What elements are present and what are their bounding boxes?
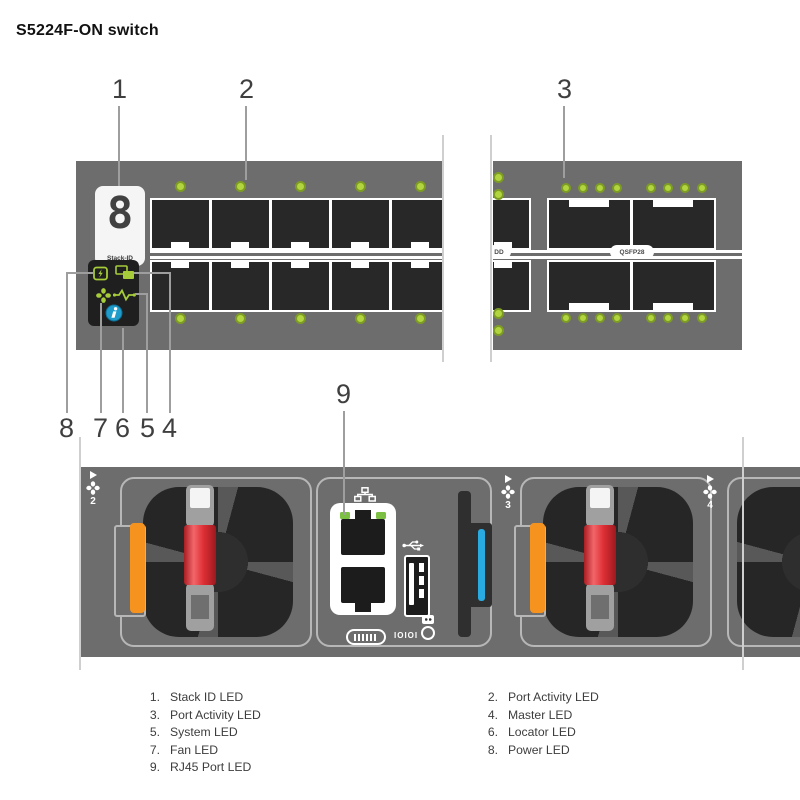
port-activity-led bbox=[612, 183, 622, 193]
port-latch bbox=[569, 303, 609, 310]
port-led bbox=[493, 325, 504, 336]
port-led bbox=[493, 189, 504, 200]
port-latch bbox=[291, 242, 309, 248]
fan-module bbox=[120, 477, 312, 647]
led-cell bbox=[270, 313, 330, 324]
port-latch bbox=[351, 262, 369, 268]
port-activity-led bbox=[235, 313, 246, 324]
legend-number: 6. bbox=[478, 725, 498, 743]
led-cell bbox=[330, 181, 390, 192]
port-activity-led bbox=[578, 313, 588, 323]
port-activity-led bbox=[595, 183, 605, 193]
rj45-led-left bbox=[340, 512, 350, 519]
media-slot-stripe bbox=[478, 529, 485, 601]
panel-divider-line bbox=[150, 256, 443, 259]
fan-release-tab bbox=[530, 523, 545, 613]
port-activity-led bbox=[663, 313, 673, 323]
legend-item: 7.Fan LED bbox=[140, 743, 261, 761]
callout-8-line bbox=[66, 272, 68, 413]
legend-number: 4. bbox=[478, 708, 498, 726]
port-activity-led bbox=[680, 183, 690, 193]
port-latch bbox=[653, 200, 693, 207]
fan-module-partial bbox=[727, 477, 800, 647]
port-activity-led bbox=[295, 181, 306, 192]
panel-divider-line bbox=[150, 250, 443, 253]
fan-handle-grip bbox=[584, 525, 616, 585]
port-activity-led bbox=[355, 181, 366, 192]
port-latch bbox=[411, 262, 429, 268]
legend-item: 5.System LED bbox=[140, 725, 261, 743]
legend-column-left: 1.Stack ID LED 3.Port Activity LED 5.Sys… bbox=[140, 690, 261, 778]
port-activity-led bbox=[561, 183, 571, 193]
legend-text: Stack ID LED bbox=[170, 690, 243, 708]
legend-text: Master LED bbox=[508, 708, 572, 726]
fan-icon bbox=[703, 485, 717, 499]
callout-6: 6 bbox=[115, 415, 130, 442]
network-icon bbox=[354, 487, 376, 502]
qsfp-led-row-top bbox=[549, 183, 718, 193]
port-latch bbox=[653, 303, 693, 310]
callout-5-line bbox=[146, 293, 148, 413]
led-cell bbox=[210, 181, 270, 192]
qsfp-port bbox=[549, 200, 630, 248]
fan-handle-bottom-cap bbox=[591, 595, 609, 619]
port-activity-led bbox=[295, 313, 306, 324]
fan-icon bbox=[86, 481, 100, 495]
qsfp-led-row-bottom bbox=[549, 313, 718, 323]
port-latch bbox=[171, 242, 189, 248]
port-activity-led bbox=[355, 313, 366, 324]
port-latch bbox=[291, 262, 309, 268]
qsfp-port-row-top bbox=[547, 198, 716, 250]
legend-item: 8.Power LED bbox=[478, 743, 599, 761]
qsfp-led-group bbox=[549, 183, 633, 193]
sfp-port bbox=[392, 262, 443, 310]
sfp-port bbox=[332, 200, 389, 248]
led-cell bbox=[210, 313, 270, 324]
triangle-icon bbox=[505, 475, 512, 483]
system-led-icon bbox=[113, 288, 136, 302]
port-activity-led bbox=[595, 313, 605, 323]
qsfp-port bbox=[633, 262, 714, 310]
fan-handle-grip bbox=[184, 525, 216, 585]
port-activity-led bbox=[175, 313, 186, 324]
port-latch bbox=[569, 200, 609, 207]
sfp-port bbox=[152, 262, 209, 310]
callout-9: 9 bbox=[336, 381, 351, 408]
rj45-port-top bbox=[341, 519, 385, 555]
diagram-break-line bbox=[742, 437, 744, 670]
callout-8: 8 bbox=[59, 415, 74, 442]
status-led-box bbox=[88, 260, 139, 326]
port-latch bbox=[231, 242, 249, 248]
usb-port-contact bbox=[419, 589, 424, 598]
fan-module-number: 4 bbox=[707, 501, 713, 511]
legend-item: 9.RJ45 Port LED bbox=[140, 760, 261, 778]
legend-number: 9. bbox=[140, 760, 160, 778]
sfp-port-partial bbox=[493, 198, 531, 250]
sfp-port bbox=[332, 262, 389, 310]
port-latch bbox=[494, 262, 512, 268]
callout-3: 3 bbox=[557, 76, 572, 103]
legend-item: 1.Stack ID LED bbox=[140, 690, 261, 708]
fan-handle-bottom-cap bbox=[191, 595, 209, 619]
port-activity-led bbox=[612, 313, 622, 323]
legend-item: 6.Locator LED bbox=[478, 725, 599, 743]
sfp-port bbox=[272, 200, 329, 248]
legend-column-right: 2.Port Activity LED 4.Master LED 6.Locat… bbox=[478, 690, 599, 760]
usb-port bbox=[404, 555, 430, 617]
diagram-break-line bbox=[79, 437, 81, 670]
port-activity-led bbox=[175, 181, 186, 192]
sfp-port bbox=[212, 262, 269, 310]
diagram-break-line bbox=[490, 135, 492, 362]
fan-blades bbox=[543, 487, 693, 637]
sfp-led-row-top bbox=[150, 181, 443, 192]
sfp-port-row-top bbox=[150, 198, 443, 250]
callout-4: 4 bbox=[162, 415, 177, 442]
led-cell bbox=[390, 313, 443, 324]
port-activity-led bbox=[697, 313, 707, 323]
legend-text: Power LED bbox=[508, 743, 570, 761]
callout-4-line-h bbox=[134, 272, 171, 274]
led-cell bbox=[390, 181, 443, 192]
fan-icon bbox=[501, 485, 515, 499]
led-cell bbox=[270, 181, 330, 192]
usb-port-contact bbox=[419, 563, 424, 572]
qsfp-led-group bbox=[634, 313, 718, 323]
sfp-port bbox=[272, 262, 329, 310]
triangle-icon bbox=[707, 475, 714, 483]
led-cell bbox=[330, 313, 390, 324]
fan-led-icon bbox=[96, 288, 111, 303]
port-activity-led bbox=[415, 181, 426, 192]
qsfp28-label: QSFP28 bbox=[610, 245, 654, 259]
legend-number: 3. bbox=[140, 708, 160, 726]
callout-2: 2 bbox=[239, 76, 254, 103]
port-led bbox=[493, 172, 504, 183]
port-activity-led bbox=[697, 183, 707, 193]
legend-number: 5. bbox=[140, 725, 160, 743]
callout-7: 7 bbox=[93, 415, 108, 442]
fan-blades bbox=[737, 487, 800, 637]
legend-item: 4.Master LED bbox=[478, 708, 599, 726]
legend-item: 2.Port Activity LED bbox=[478, 690, 599, 708]
rear-panel: 2 bbox=[80, 467, 800, 657]
legend-text: Locator LED bbox=[508, 725, 576, 743]
fan-module-marker: 4 bbox=[702, 475, 718, 511]
micro-usb-port bbox=[346, 629, 386, 645]
qsfp-port bbox=[549, 262, 630, 310]
usb-port-tongue bbox=[409, 563, 414, 605]
locator-led-icon bbox=[105, 304, 123, 322]
port-activity-led bbox=[235, 181, 246, 192]
fan-release-tab bbox=[130, 523, 145, 613]
sfp-port bbox=[212, 200, 269, 248]
stack-id-display: 8 Stack-ID bbox=[95, 186, 145, 266]
triangle-icon bbox=[90, 471, 97, 479]
callout-5: 5 bbox=[140, 415, 155, 442]
qsfp-port bbox=[633, 200, 714, 248]
diagram-break-line bbox=[442, 135, 444, 362]
port-led bbox=[493, 308, 504, 319]
sfp-port-row-bottom bbox=[150, 260, 443, 312]
rj45-port-bezel bbox=[330, 503, 396, 615]
fan-module-marker: 2 bbox=[85, 471, 101, 507]
usb-port-contact bbox=[419, 576, 424, 585]
led-cell bbox=[150, 313, 210, 324]
micro-usb-contacts bbox=[354, 634, 378, 641]
sfp-port-partial bbox=[493, 260, 531, 312]
lock-icon bbox=[422, 615, 434, 624]
page-title: S5224F-ON switch bbox=[16, 22, 159, 40]
callout-5-line-h bbox=[135, 293, 148, 295]
fan-blades bbox=[143, 487, 293, 637]
front-panel-left: 8 Stack-ID bbox=[76, 161, 443, 350]
sfp-port bbox=[152, 200, 209, 248]
port-latch bbox=[411, 242, 429, 248]
callout-2-line bbox=[245, 106, 247, 180]
sfp-led-row-bottom bbox=[150, 313, 443, 324]
stack-id-digit: 8 bbox=[95, 192, 145, 236]
power-led-icon bbox=[93, 266, 109, 281]
sfp-port bbox=[392, 200, 443, 248]
port-activity-led bbox=[415, 313, 426, 324]
port-activity-led bbox=[578, 183, 588, 193]
legend-text: RJ45 Port LED bbox=[170, 760, 251, 778]
port-activity-led bbox=[680, 313, 690, 323]
qsfp-port-row-bottom bbox=[547, 260, 716, 312]
port-latch bbox=[351, 242, 369, 248]
callout-6-line bbox=[122, 328, 124, 413]
led-cell bbox=[150, 181, 210, 192]
fan-module-marker: 3 bbox=[500, 475, 516, 511]
qsfp-dd-label: DD bbox=[493, 245, 511, 259]
port-latch bbox=[171, 262, 189, 268]
port-activity-led bbox=[646, 183, 656, 193]
fan-module bbox=[520, 477, 712, 647]
fan-handle-top-cap bbox=[590, 488, 610, 508]
legend-item: 3.Port Activity LED bbox=[140, 708, 261, 726]
fan-module-number: 2 bbox=[90, 497, 96, 507]
callout-7-line bbox=[100, 303, 102, 413]
rj45-tab bbox=[355, 510, 371, 520]
legend-number: 8. bbox=[478, 743, 498, 761]
port-activity-led bbox=[663, 183, 673, 193]
master-led-icon bbox=[115, 265, 135, 280]
port-latch bbox=[231, 262, 249, 268]
qsfp-led-group bbox=[549, 313, 633, 323]
lock-slot bbox=[421, 626, 435, 640]
serial-console-label: IOIOI bbox=[394, 631, 418, 640]
callout-1: 1 bbox=[112, 76, 127, 103]
front-panel-right: DD QSFP28 bbox=[493, 161, 742, 350]
legend-text: Fan LED bbox=[170, 743, 218, 761]
port-activity-led bbox=[561, 313, 571, 323]
rj45-led-right bbox=[376, 512, 386, 519]
legend-text: System LED bbox=[170, 725, 238, 743]
legend-text: Port Activity LED bbox=[170, 708, 261, 726]
legend-number: 2. bbox=[478, 690, 498, 708]
fan-handle-top-cap bbox=[190, 488, 210, 508]
port-activity-led bbox=[646, 313, 656, 323]
callout-3-line bbox=[563, 106, 565, 178]
legend-number: 1. bbox=[140, 690, 160, 708]
callout-9-line bbox=[343, 411, 345, 515]
legend-text: Port Activity LED bbox=[508, 690, 599, 708]
callout-1-line bbox=[118, 106, 120, 186]
legend-number: 7. bbox=[140, 743, 160, 761]
rj45-tab bbox=[355, 602, 371, 612]
rj45-port-bottom bbox=[341, 567, 385, 603]
callout-8-line-h bbox=[66, 272, 94, 274]
qsfp-led-group bbox=[634, 183, 718, 193]
fan-module-number: 3 bbox=[505, 501, 511, 511]
callout-4-line bbox=[169, 272, 171, 413]
usb-icon bbox=[402, 539, 424, 552]
figure-page: S5224F-ON switch 1 2 3 4 5 6 7 8 9 8 Sta… bbox=[0, 0, 800, 800]
